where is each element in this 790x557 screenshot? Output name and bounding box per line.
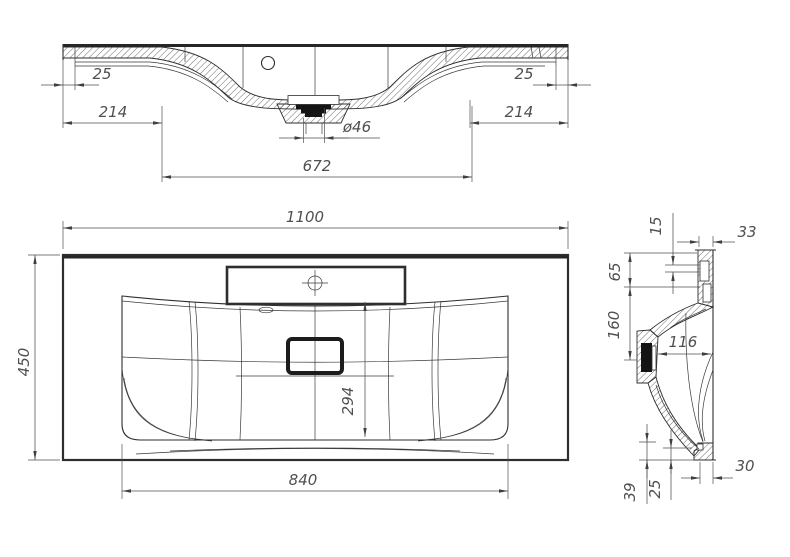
bowl-contour: [418, 378, 506, 441]
bowl-contour: [195, 302, 198, 441]
bowl-contour: [424, 368, 508, 440]
dim-side-deck-lip: 15: [647, 216, 665, 235]
side-drain-hole: [641, 343, 652, 372]
bowl-contour: [122, 368, 206, 440]
dim-side-front-inner: 25: [646, 479, 664, 498]
dim-side-front-step: 39: [621, 482, 639, 501]
side-deck-ledge: [703, 284, 711, 302]
side-contour: [698, 352, 713, 441]
dim-front-right-rim: 25: [514, 65, 533, 83]
side-rim-notch: [697, 444, 703, 450]
bowl-contour: [432, 302, 435, 441]
drain-ring: [296, 105, 331, 110]
side-drain-slit: [652, 346, 656, 370]
drain-ring: [301, 110, 326, 114]
apron-arc: [136, 449, 494, 455]
dim-front-bowl-width: 672: [303, 157, 332, 175]
dim-side-bottom-ledge: 30: [735, 457, 754, 475]
bowl-contour: [240, 307, 242, 440]
side-deck-ledge: [700, 261, 709, 281]
drawing-canvas: 25 214 ø46 672 25 214: [0, 0, 790, 557]
side-contour: [656, 385, 699, 449]
side-bottom-wall-section: [648, 377, 700, 456]
faucet-deck: [227, 267, 405, 304]
bowl-contour: [389, 307, 391, 440]
overflow-hole: [262, 57, 275, 70]
dim-front-left-rim: 25: [92, 65, 111, 83]
dim-side-rim-thickness: 33: [737, 223, 756, 241]
dim-side-bowl-inner: 116: [669, 333, 698, 351]
dim-plan-overall-depth: 450: [15, 348, 33, 377]
bowl-contour: [438, 301, 441, 440]
dim-plan-bowl-depth: 294: [339, 387, 357, 416]
side-wall-section: [650, 303, 713, 337]
washbasin-technical-drawing: 25 214 ø46 672 25 214: [0, 0, 790, 557]
dim-front-left-deck: 214: [99, 103, 128, 121]
dim-drain-diameter: ø46: [342, 118, 371, 136]
drain-ring: [305, 114, 322, 118]
dim-plan-overall-width: 1100: [286, 208, 324, 226]
bowl-contour: [189, 301, 192, 440]
front-section-view: 25 214 ø46 672 25 214: [41, 44, 591, 182]
dim-side-mid-depth: 160: [605, 311, 623, 340]
dim-front-right-deck: 214: [505, 103, 534, 121]
plan-view: 1100 450 294 840: [15, 208, 568, 499]
side-section-view: 15 33 65 160 116 39 25: [605, 213, 757, 504]
dim-side-upper-step: 65: [606, 262, 624, 281]
side-contour: [702, 370, 713, 441]
dim-plan-bowl-width: 840: [289, 471, 318, 489]
bowl-contour: [124, 378, 212, 441]
drain-flange: [288, 96, 339, 105]
